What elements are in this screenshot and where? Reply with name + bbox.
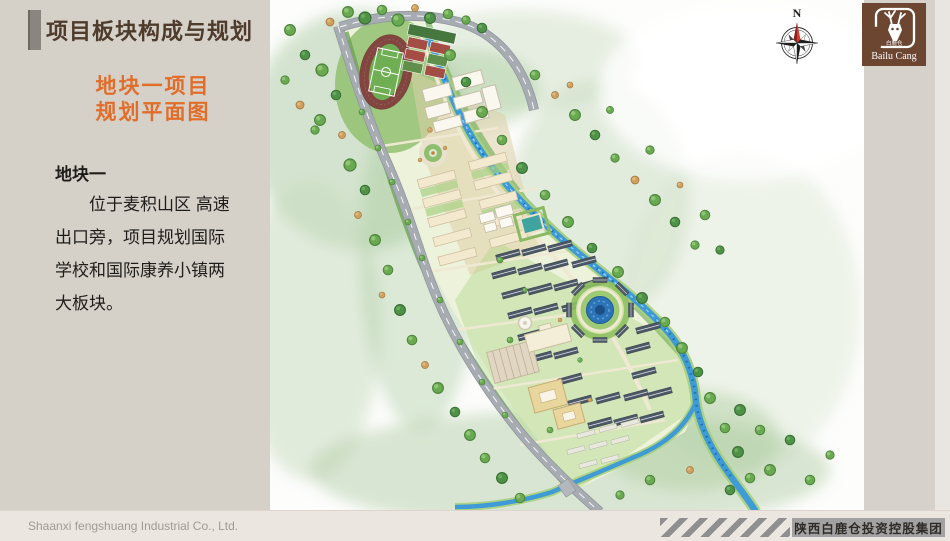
footer-company-box: 陕西白鹿仓投资控股集团 [792,518,945,537]
logo-text-cn: 白鹿仓 [886,39,903,47]
left-panel: 项目板块构成与规划 地块一项目 规划平面图 地块一 位于麦积山区 高速 出口旁，… [0,0,270,510]
slide-root: 项目板块构成与规划 地块一项目 规划平面图 地块一 位于麦积山区 高速 出口旁，… [0,0,950,541]
footer-bar: Shaanxi fengshuang Industrial Co., Ltd. … [0,510,950,541]
body-heading: 地块一 [55,160,106,185]
footer-company-en: Shaanxi fengshuang Industrial Co., Ltd. [28,519,238,533]
logo-text-en: Bailu Cang [871,51,916,62]
site-plan-map [270,0,864,510]
small-fountain [519,317,532,330]
compass-cardinal-points [776,22,818,64]
school-plaza-fountain [419,139,447,167]
map-subtitle: 地块一项目 规划平面图 [58,74,248,126]
right-panel [864,0,935,510]
footer-company-cn: 陕西白鹿仓投资控股集团 [794,518,943,537]
site-plan-illustration [270,0,864,510]
body-paragraph: 位于麦积山区 高速 出口旁，项目规划国际 学校和国际康养小镇两 大板块。 [55,188,265,320]
right-edge-strip [935,0,950,541]
landscape-pond [567,278,634,343]
deer-icon [885,11,905,25]
page-title: 项目板块构成与规划 [46,14,253,46]
title-accent-bar [28,10,41,50]
footer-stripes [660,518,790,537]
deer-head [888,24,902,41]
compass-north-label: N [793,6,802,20]
compass-rose: N [764,6,830,72]
company-logo: 白鹿仓 Bailu Cang [862,3,926,66]
